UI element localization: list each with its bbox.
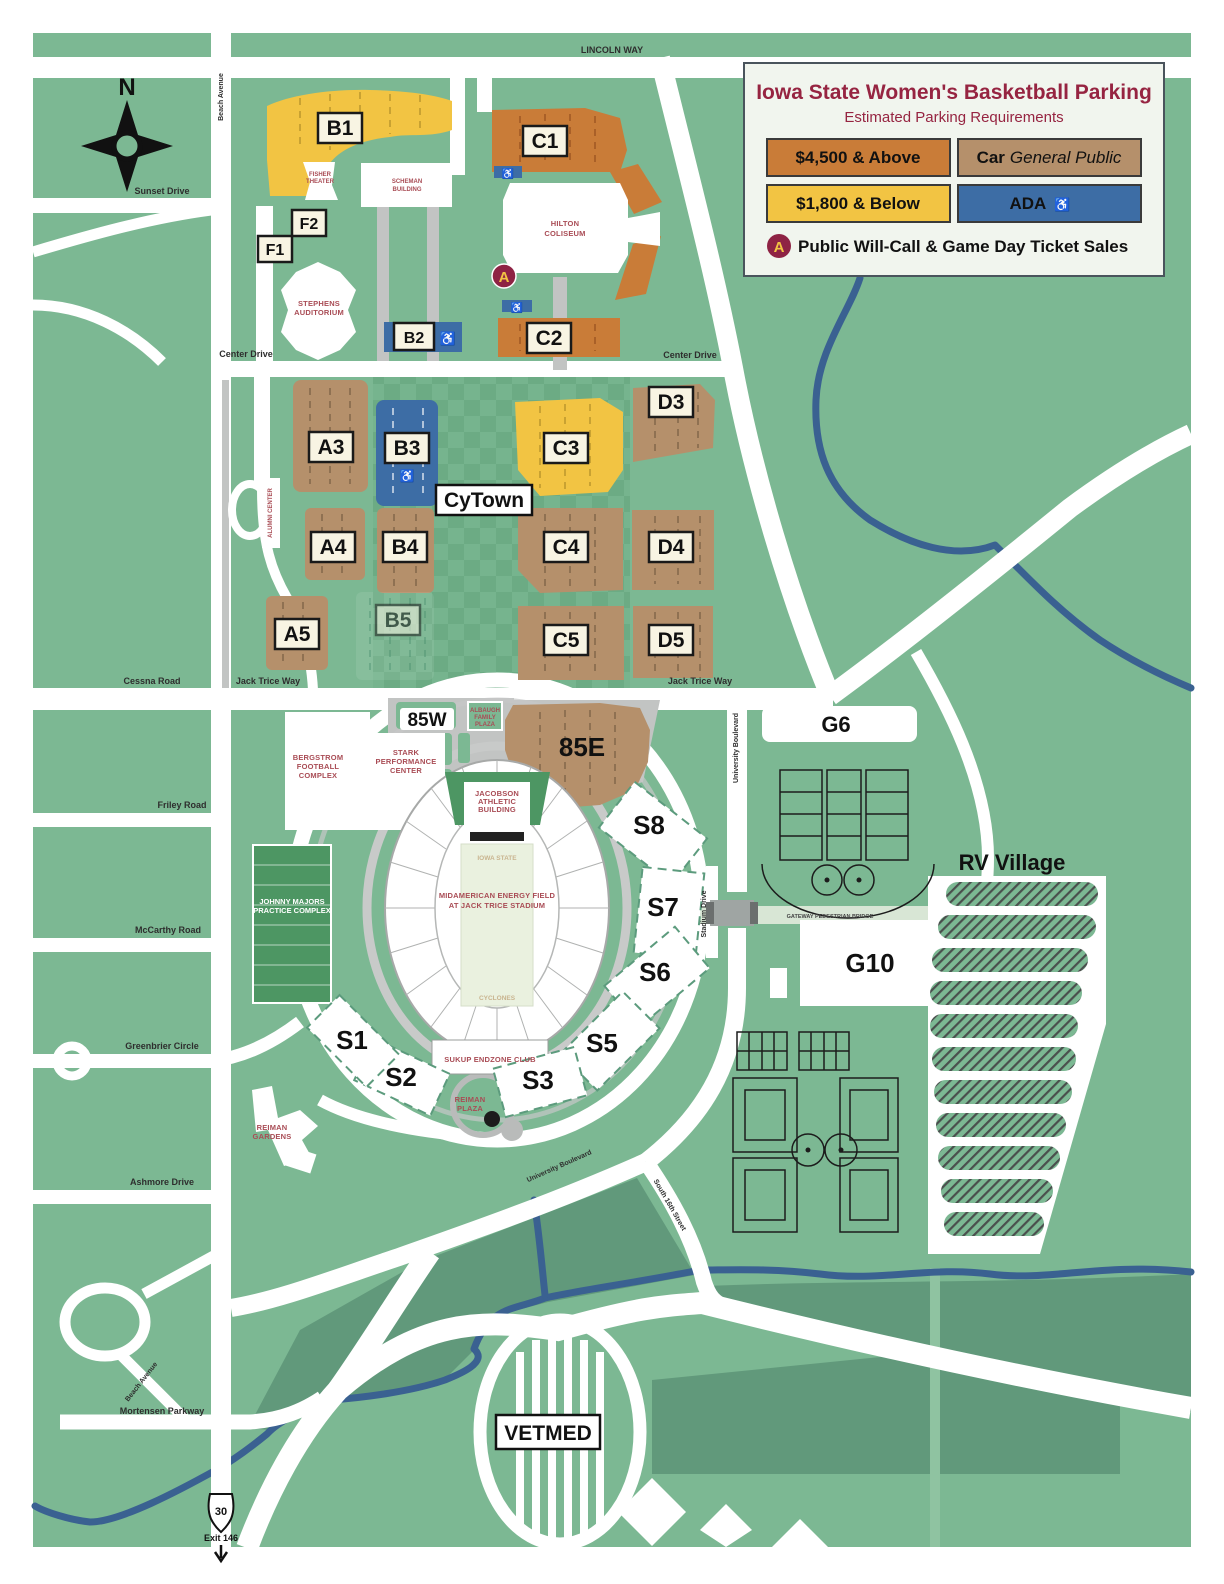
road-center-drive — [211, 361, 737, 377]
practice-field — [253, 845, 331, 1003]
cytown-label: CyTown — [444, 489, 524, 512]
willcall-a-letter: A — [499, 269, 510, 286]
rv-row-6 — [932, 1047, 1076, 1071]
lot-d3-label: D3 — [658, 391, 685, 414]
lot-a4-label: A4 — [320, 536, 347, 559]
hilton-entrance — [628, 212, 660, 246]
lot-85e-label: 85E — [559, 732, 605, 762]
legend-swatch-ada — [958, 185, 1141, 222]
lot-d5-label: D5 — [658, 629, 685, 652]
jacobson-label: JACOBSONATHLETICBUILDING — [475, 789, 519, 814]
mccarthy-road-label: McCarthy Road — [135, 925, 201, 935]
lot-b4-label: B4 — [392, 536, 419, 559]
rv-village-label: RV Village — [959, 850, 1066, 875]
campus-parking-map: B1 F2 F1 B2 ♿ C1 ♿ C2 ♿ A3 A4 A5 B3 ♿ B4… — [0, 0, 1224, 1584]
university-blvd-north-label: University Boulevard — [733, 713, 740, 783]
endzone-north-label: IOWA STATE — [477, 855, 517, 862]
greenbrier-circle-label: Greenbrier Circle — [125, 1041, 199, 1051]
legend-willcall-label: Public Will-Call & Game Day Ticket Sales — [798, 237, 1128, 256]
stadium-drive-label: Stadium Drive — [701, 890, 708, 937]
lot-c2-ada-icon: ♿ — [511, 301, 523, 314]
lot-b5-label: B5 — [385, 609, 412, 632]
lot-b3-label: B3 — [394, 437, 421, 460]
rv-row-8 — [936, 1113, 1066, 1137]
ashmore-drive-label: Ashmore Drive — [130, 1177, 194, 1187]
friley-road-label: Friley Road — [157, 800, 206, 810]
rv-row-7 — [934, 1080, 1072, 1104]
lot-b1-label: B1 — [327, 117, 354, 140]
lot-85w-sliver — [458, 733, 470, 763]
us30-label: 30 — [215, 1506, 227, 1518]
logo-dot-n1 — [825, 878, 830, 883]
rv-row-4 — [930, 981, 1082, 1005]
lot-a5-label: A5 — [284, 623, 311, 646]
lot-s5-label: S5 — [586, 1028, 618, 1058]
logo-dot-s1 — [806, 1148, 811, 1153]
lot-c4-label: C4 — [553, 536, 580, 559]
legend-ada-label: ADA♿ — [1009, 194, 1070, 213]
lot-s2-label: S2 — [385, 1062, 417, 1092]
legend-panel: Iowa State Women's Basketball Parking Es… — [744, 63, 1164, 276]
lincoln-way-label: LINCOLN WAY — [581, 45, 643, 55]
lot-g6-label: G6 — [821, 712, 850, 737]
rv-row-2 — [938, 915, 1096, 939]
lot-b2-ada-icon: ♿ — [440, 331, 456, 346]
reiman-gardens-label: REIMANGARDENS — [253, 1123, 292, 1141]
jack-trice-east-label: Jack Trice Way — [668, 676, 732, 686]
lot-s7-label: S7 — [647, 892, 679, 922]
johnny-majors-label: JOHNNY MAJORSPRACTICE COMPLEX — [253, 897, 331, 915]
field-label: MIDAMERICAN ENERGY FIELDAT JACK TRICE ST… — [439, 891, 556, 910]
bergstrom-label: BERGSTROMFOOTBALLCOMPLEX — [293, 753, 344, 780]
logo-dot-s2 — [839, 1148, 844, 1153]
lot-c1-ada-icon: ♿ — [502, 167, 514, 180]
road-hilton-west-access — [450, 57, 465, 175]
gateway-bridge-label: GATEWAY PEDESTRIAN BRIDGE — [787, 914, 874, 920]
lot-c1-label: C1 — [532, 130, 559, 153]
lot-g10-label: G10 — [845, 948, 894, 978]
legend-tier-low-label: $1,800 & Below — [796, 194, 921, 213]
road-coliseum-entry — [477, 57, 492, 112]
sunset-drive-label: Sunset Drive — [134, 186, 189, 196]
rv-row-1 — [946, 882, 1098, 906]
rv-row-10 — [941, 1179, 1053, 1203]
lot-s1-label: S1 — [336, 1025, 368, 1055]
lot-s8-label: S8 — [633, 810, 665, 840]
stadium-field — [461, 844, 533, 1006]
road-f-lot-access — [256, 206, 273, 368]
road-beach-avenue-south — [211, 712, 231, 1548]
compass-north-label: N — [118, 74, 135, 101]
rv-row-9 — [938, 1146, 1060, 1170]
trail-path — [930, 1268, 940, 1547]
lot-f1-label: F1 — [266, 242, 285, 259]
hilton-coliseum-shape — [503, 183, 628, 273]
rv-row-11 — [944, 1212, 1044, 1236]
lot-f2-label: F2 — [300, 216, 319, 233]
gateway-bridge-icon — [710, 900, 754, 926]
logo-dot-n2 — [857, 878, 862, 883]
road-alumni-access — [254, 377, 270, 489]
mortensen-parkway-label: Mortensen Parkway — [120, 1406, 205, 1416]
reiman-cyclone-logo — [484, 1111, 500, 1127]
g10-pad — [770, 968, 787, 998]
lot-a3-label: A3 — [318, 436, 345, 459]
road-ashmore-drive — [33, 1190, 223, 1204]
reiman-plaza-label: REIMANPLAZA — [455, 1095, 486, 1113]
legend-a-letter: A — [774, 239, 785, 256]
chip-b5-ghost: B5 — [376, 605, 420, 635]
reiman-plaza-pad — [501, 1119, 523, 1141]
lot-s3-label: S3 — [522, 1065, 554, 1095]
sukup-label: SUKUP ENDZONE CLUB — [444, 1055, 536, 1064]
rv-row-5 — [930, 1014, 1078, 1038]
fisher-label: FISHERTHEATER — [306, 172, 335, 185]
lot-s6-label: S6 — [639, 957, 671, 987]
endzone-south-label: CYCLONES — [479, 995, 516, 1002]
jack-trice-west-label: Jack Trice Way — [236, 676, 300, 686]
bridge-end-east — [750, 902, 758, 924]
lot-c5-label: C5 — [553, 629, 580, 652]
lot-c2-label: C2 — [536, 327, 563, 350]
scheman-building-shape — [361, 163, 452, 207]
scoreboard — [470, 832, 524, 841]
exit-146-label: Exit 146 — [204, 1533, 238, 1543]
cessna-road-label: Cessna Road — [123, 676, 180, 686]
legend-car-label: CarGeneral Public — [977, 148, 1122, 167]
beach-avenue-north-label: Beach Avenue — [218, 73, 225, 121]
center-drive-west-label: Center Drive — [219, 349, 273, 359]
vetmed-label: VETMED — [504, 1422, 592, 1445]
lot-85w-label: 85W — [407, 710, 446, 731]
center-drive-east-label: Center Drive — [663, 350, 717, 360]
road-mccarthy-road — [33, 938, 211, 952]
parking-map-page: B1 F2 F1 B2 ♿ C1 ♿ C2 ♿ A3 A4 A5 B3 ♿ B4… — [0, 0, 1224, 1584]
legend-subtitle: Estimated Parking Requirements — [844, 109, 1063, 126]
stephens-label: STEPHENSAUDITORIUM — [294, 299, 344, 317]
legend-tier-high-label: $4,500 & Above — [795, 148, 920, 167]
rv-row-3 — [932, 948, 1088, 972]
beach-avenue-median — [222, 380, 229, 688]
lot-c3-label: C3 — [553, 437, 580, 460]
legend-title: Iowa State Women's Basketball Parking — [756, 81, 1152, 104]
lot-d4-label: D4 — [658, 536, 685, 559]
compass-hub — [114, 133, 140, 159]
road-friley-road — [33, 813, 211, 827]
alumni-center-label: ALUMNI CENTER — [268, 488, 274, 538]
lot-b2-label: B2 — [404, 330, 425, 347]
lot-b3-ada-icon: ♿ — [400, 469, 415, 483]
